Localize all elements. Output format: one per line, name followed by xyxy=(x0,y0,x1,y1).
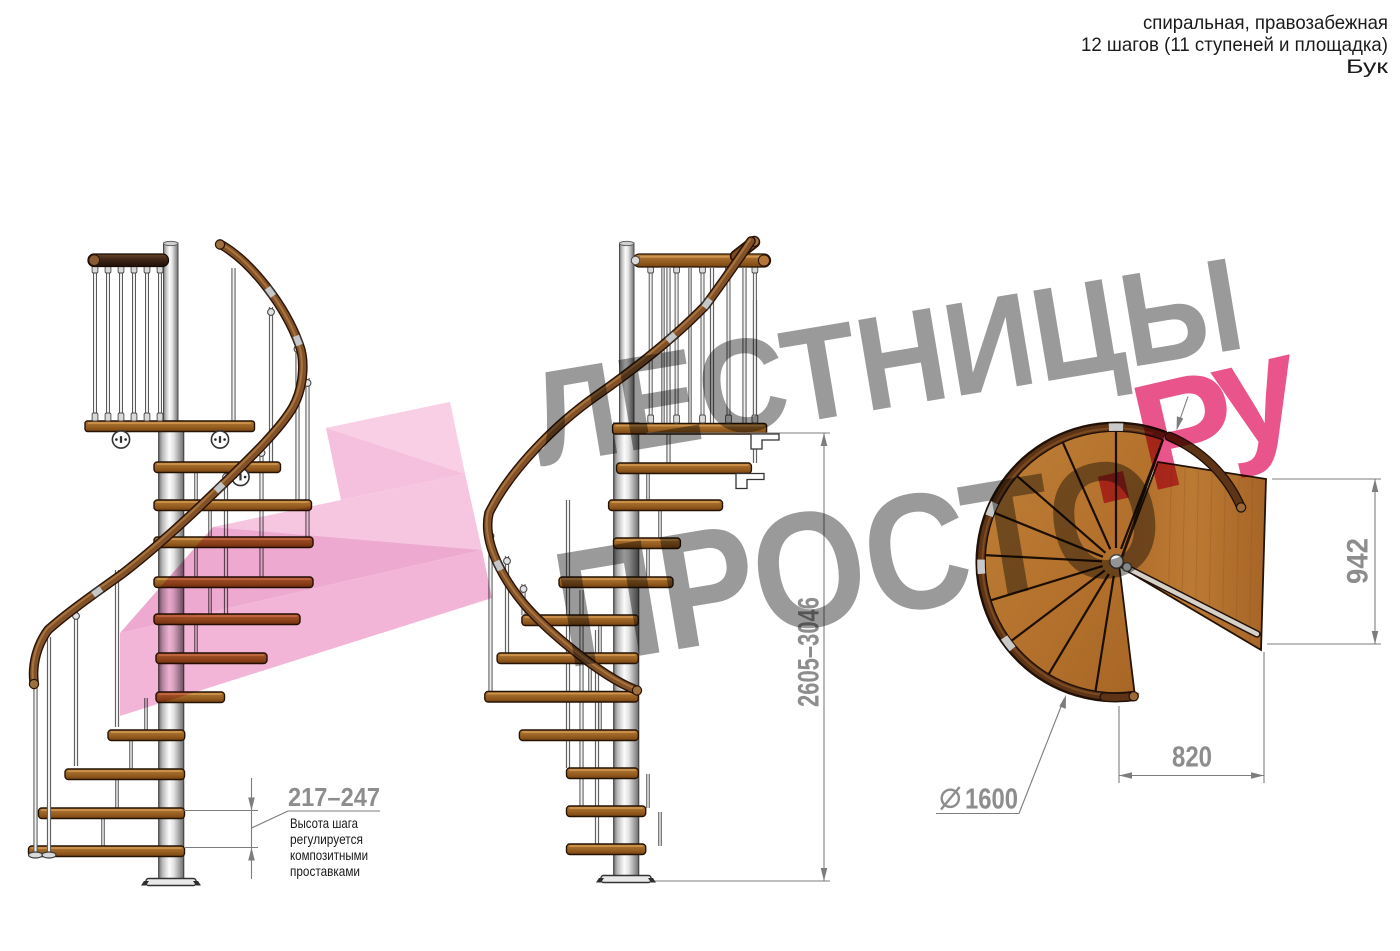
svg-text:820: 820 xyxy=(1172,742,1212,774)
svg-text:12 шагов (11 ступеней и площад: 12 шагов (11 ступеней и площадка) xyxy=(1081,34,1388,56)
svg-text:942: 942 xyxy=(1342,538,1375,584)
svg-text:спиральная, правозабежная: спиральная, правозабежная xyxy=(1143,12,1388,34)
svg-text:регулируется: регулируется xyxy=(290,832,363,847)
svg-text:1600: 1600 xyxy=(965,784,1018,816)
svg-text:композитными: композитными xyxy=(290,848,368,863)
svg-text:Бук: Бук xyxy=(1346,56,1389,78)
svg-text:217–247: 217–247 xyxy=(288,782,380,812)
svg-text:проставками: проставками xyxy=(290,864,360,879)
svg-text:Высота шага: Высота шага xyxy=(290,816,358,831)
